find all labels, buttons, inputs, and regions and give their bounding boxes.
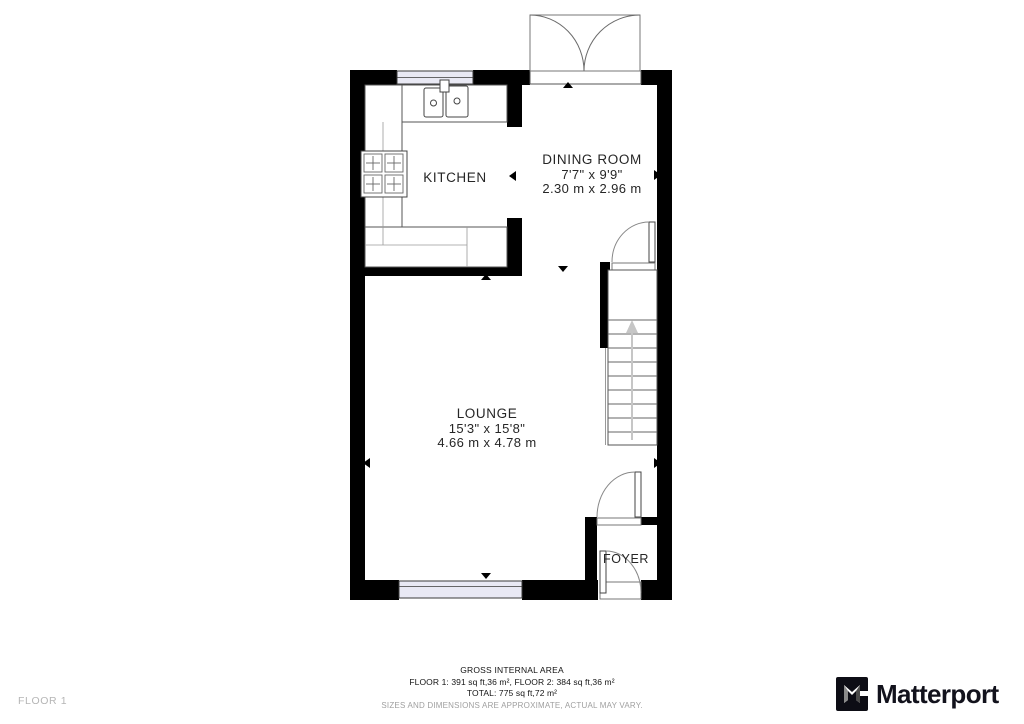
dining-room-label: DINING ROOM bbox=[542, 152, 642, 167]
stove bbox=[361, 151, 407, 197]
matterport-logo-icon bbox=[836, 677, 868, 711]
floor-number-label: FLOOR 1 bbox=[18, 695, 67, 707]
foyer-inner-door bbox=[597, 472, 641, 525]
wall-segment bbox=[507, 70, 522, 127]
foyer-label: FOYER bbox=[603, 552, 649, 566]
lounge-imperial-dims: 15'3" x 15'8" bbox=[449, 421, 526, 436]
french-doors bbox=[530, 15, 641, 84]
lounge-label: LOUNGE bbox=[457, 406, 518, 421]
faucet bbox=[440, 80, 449, 92]
marker-down-icon bbox=[481, 573, 491, 579]
matterport-logo: Matterport bbox=[836, 677, 999, 711]
wall-segment bbox=[641, 580, 672, 600]
wall-segment bbox=[350, 70, 365, 600]
floorplan-page: KITCHEN DINING ROOM 7'7" x 9'9" 2.30 m x… bbox=[0, 0, 1024, 724]
wall-segment bbox=[641, 517, 658, 525]
gross-internal-area-title: GROSS INTERNAL AREA bbox=[0, 665, 1024, 677]
matterport-logo-text: Matterport bbox=[876, 679, 999, 710]
windows bbox=[397, 71, 522, 598]
marker-down-icon bbox=[558, 266, 568, 272]
lounge-window bbox=[399, 581, 522, 598]
kitchen-label: KITCHEN bbox=[423, 170, 486, 185]
wall-segment bbox=[350, 580, 399, 600]
counter-bottom-run bbox=[365, 227, 507, 267]
marker-left-icon bbox=[509, 171, 516, 181]
staircase bbox=[606, 270, 658, 445]
wall-segment bbox=[657, 70, 672, 600]
lounge-metric-dims: 4.66 m x 4.78 m bbox=[437, 435, 536, 450]
kitchen-window bbox=[397, 71, 473, 84]
wall-segment bbox=[350, 70, 397, 85]
wall-segment bbox=[585, 517, 597, 600]
dining-room-metric-dims: 2.30 m x 2.96 m bbox=[542, 181, 641, 196]
floor-plan-canvas: KITCHEN DINING ROOM 7'7" x 9'9" 2.30 m x… bbox=[0, 0, 1024, 724]
dining-room-imperial-dims: 7'7" x 9'9" bbox=[561, 167, 622, 182]
stairs-door bbox=[612, 222, 655, 271]
